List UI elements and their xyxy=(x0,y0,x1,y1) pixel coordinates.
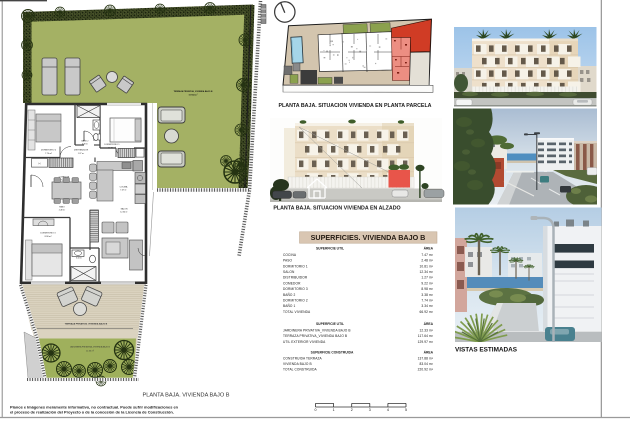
svg-text:DORMITORIO 1: DORMITORIO 1 xyxy=(283,264,308,268)
svg-text:3.34 m²: 3.34 m² xyxy=(76,256,82,259)
svg-text:12.34 m²: 12.34 m² xyxy=(120,211,128,214)
svg-text:SUPERFICIE UTIL: SUPERFICIE UTIL xyxy=(316,247,344,251)
svg-text:PLANTA BAJA. SITUACION VIVIEND: PLANTA BAJA. SITUACION VIVIENDA EN ALZAD… xyxy=(273,206,400,212)
svg-text:9.22 m²: 9.22 m² xyxy=(421,281,433,285)
svg-text:SUPERFICIE CONSTRUIDA: SUPERFICIE CONSTRUIDA xyxy=(311,351,354,355)
svg-text:SUPERFICIE UTIL: SUPERFICIE UTIL xyxy=(316,322,344,326)
svg-text:5: 5 xyxy=(405,408,407,412)
svg-text:4: 4 xyxy=(387,408,389,412)
svg-text:8.98 m²: 8.98 m² xyxy=(45,235,52,238)
svg-text:BAÑO 2: BAÑO 2 xyxy=(82,140,89,143)
svg-text:ÁREA: ÁREA xyxy=(424,321,434,326)
svg-text:129.97 m²: 129.97 m² xyxy=(418,340,433,344)
svg-text:10.81 m²: 10.81 m² xyxy=(108,146,116,149)
svg-text:7.74 m²: 7.74 m² xyxy=(45,152,52,155)
svg-text:DORMITORIO 3: DORMITORIO 3 xyxy=(283,287,308,291)
svg-text:DISTRIBUIDOR: DISTRIBUIDOR xyxy=(283,276,308,280)
svg-text:SUPERFICIES. VIVIENDA BAJO B: SUPERFICIES. VIVIENDA BAJO B xyxy=(311,233,426,242)
svg-text:83.04 m²: 83.04 m² xyxy=(419,362,433,366)
svg-text:TERRAZA PRIVATIVA_VIVIENDA BAJ: TERRAZA PRIVATIVA_VIVIENDA BAJO B xyxy=(65,323,108,326)
svg-text:PLANTA BAJA. SITUACION VIVIEND: PLANTA BAJA. SITUACION VIVIENDA EN PLANT… xyxy=(278,103,431,109)
svg-text:DORMITORIO 2: DORMITORIO 2 xyxy=(41,150,57,152)
svg-text:COCINA: COCINA xyxy=(283,253,297,257)
svg-text:10.81 m²: 10.81 m² xyxy=(419,264,433,268)
svg-text:12.33 m²: 12.33 m² xyxy=(86,350,94,353)
svg-text:3.38 m²: 3.38 m² xyxy=(82,143,88,146)
svg-text:7.47 m²: 7.47 m² xyxy=(421,253,433,257)
svg-text:DISTRIBUIDOR: DISTRIBUIDOR xyxy=(74,150,89,152)
svg-text:TOTAL CONSTRUIDA: TOTAL CONSTRUIDA xyxy=(283,368,317,372)
svg-text:PASO: PASO xyxy=(59,206,65,209)
svg-text:DORMITORIO 2: DORMITORIO 2 xyxy=(283,299,308,303)
svg-text:DORMITORIO 3: DORMITORIO 3 xyxy=(40,233,56,235)
svg-text:117.64 m²: 117.64 m² xyxy=(418,334,433,338)
svg-text:UTIL EXTERIOR VIVIENDA: UTIL EXTERIOR VIVIENDA xyxy=(283,340,326,344)
svg-text:SALON: SALON xyxy=(121,208,128,211)
svg-text:BAÑO 1: BAÑO 1 xyxy=(283,303,296,308)
svg-text:66.92 m²: 66.92 m² xyxy=(419,310,433,314)
svg-text:2.48 m²: 2.48 m² xyxy=(59,209,66,212)
svg-text:VIVIENDA BAJO B: VIVIENDA BAJO B xyxy=(283,362,312,366)
svg-text:SALON: SALON xyxy=(283,270,295,274)
svg-text:12.33 m²: 12.33 m² xyxy=(419,329,433,333)
svg-text:ÁREA: ÁREA xyxy=(424,246,434,251)
svg-text:CONSTRUIDA TERRAZA: CONSTRUIDA TERRAZA xyxy=(283,356,323,360)
svg-text:12.34 m²: 12.34 m² xyxy=(419,270,433,274)
svg-text:PLANTA BAJA. VIVIENDA BAJO B: PLANTA BAJA. VIVIENDA BAJO B xyxy=(143,393,230,399)
svg-text:1.27 m²: 1.27 m² xyxy=(78,152,85,155)
svg-text:VISTAS ESTIMADAS: VISTAS ESTIMADAS xyxy=(455,347,518,354)
svg-text:COMEDOR: COMEDOR xyxy=(283,281,301,285)
svg-text:TERRAZA PRIVATIVA_VIVIENDA BAJ: TERRAZA PRIVATIVA_VIVIENDA BAJO B xyxy=(283,334,347,338)
svg-text:JARDINERA PRIVATIVA_VIVIENDA B: JARDINERA PRIVATIVA_VIVIENDA BAJO B xyxy=(283,329,351,333)
svg-text:7.74 m²: 7.74 m² xyxy=(421,299,433,303)
svg-text:3: 3 xyxy=(369,408,371,412)
svg-text:COCINA: COCINA xyxy=(120,186,128,189)
svg-text:3.38 m²: 3.38 m² xyxy=(421,293,433,297)
svg-text:TERRAZA PRIVATIVA_VIVIENDA BAJ: TERRAZA PRIVATIVA_VIVIENDA BAJO B xyxy=(174,90,213,93)
svg-text:1.27 m²: 1.27 m² xyxy=(421,276,433,280)
svg-text:JARDINERA PRIVATIVA_VIVIENDA B: JARDINERA PRIVATIVA_VIVIENDA BAJO B xyxy=(70,346,110,349)
svg-text:BAÑO 2: BAÑO 2 xyxy=(283,292,296,297)
svg-text:0: 0 xyxy=(315,408,317,412)
svg-text:DORMITORIO 1: DORMITORIO 1 xyxy=(104,144,120,146)
svg-text:8.98 m²: 8.98 m² xyxy=(421,287,433,291)
svg-text:el proceso de realización del: el proceso de realización del Proyecto o… xyxy=(10,410,174,415)
svg-text:2: 2 xyxy=(351,408,353,412)
svg-text:3.34 m²: 3.34 m² xyxy=(421,304,433,308)
svg-text:1: 1 xyxy=(333,408,335,412)
svg-text:2.48 m²: 2.48 m² xyxy=(421,259,433,263)
svg-text:7.47 m²: 7.47 m² xyxy=(120,189,127,192)
svg-text:117.64 m²: 117.64 m² xyxy=(188,94,197,97)
svg-text:TOTAL VIVIENDA: TOTAL VIVIENDA xyxy=(283,310,311,314)
svg-text:137.88 m²: 137.88 m² xyxy=(418,356,433,360)
svg-text:ÁREA: ÁREA xyxy=(424,350,434,355)
svg-text:PASO: PASO xyxy=(283,259,293,263)
svg-text:220.92 m²: 220.92 m² xyxy=(418,368,433,372)
